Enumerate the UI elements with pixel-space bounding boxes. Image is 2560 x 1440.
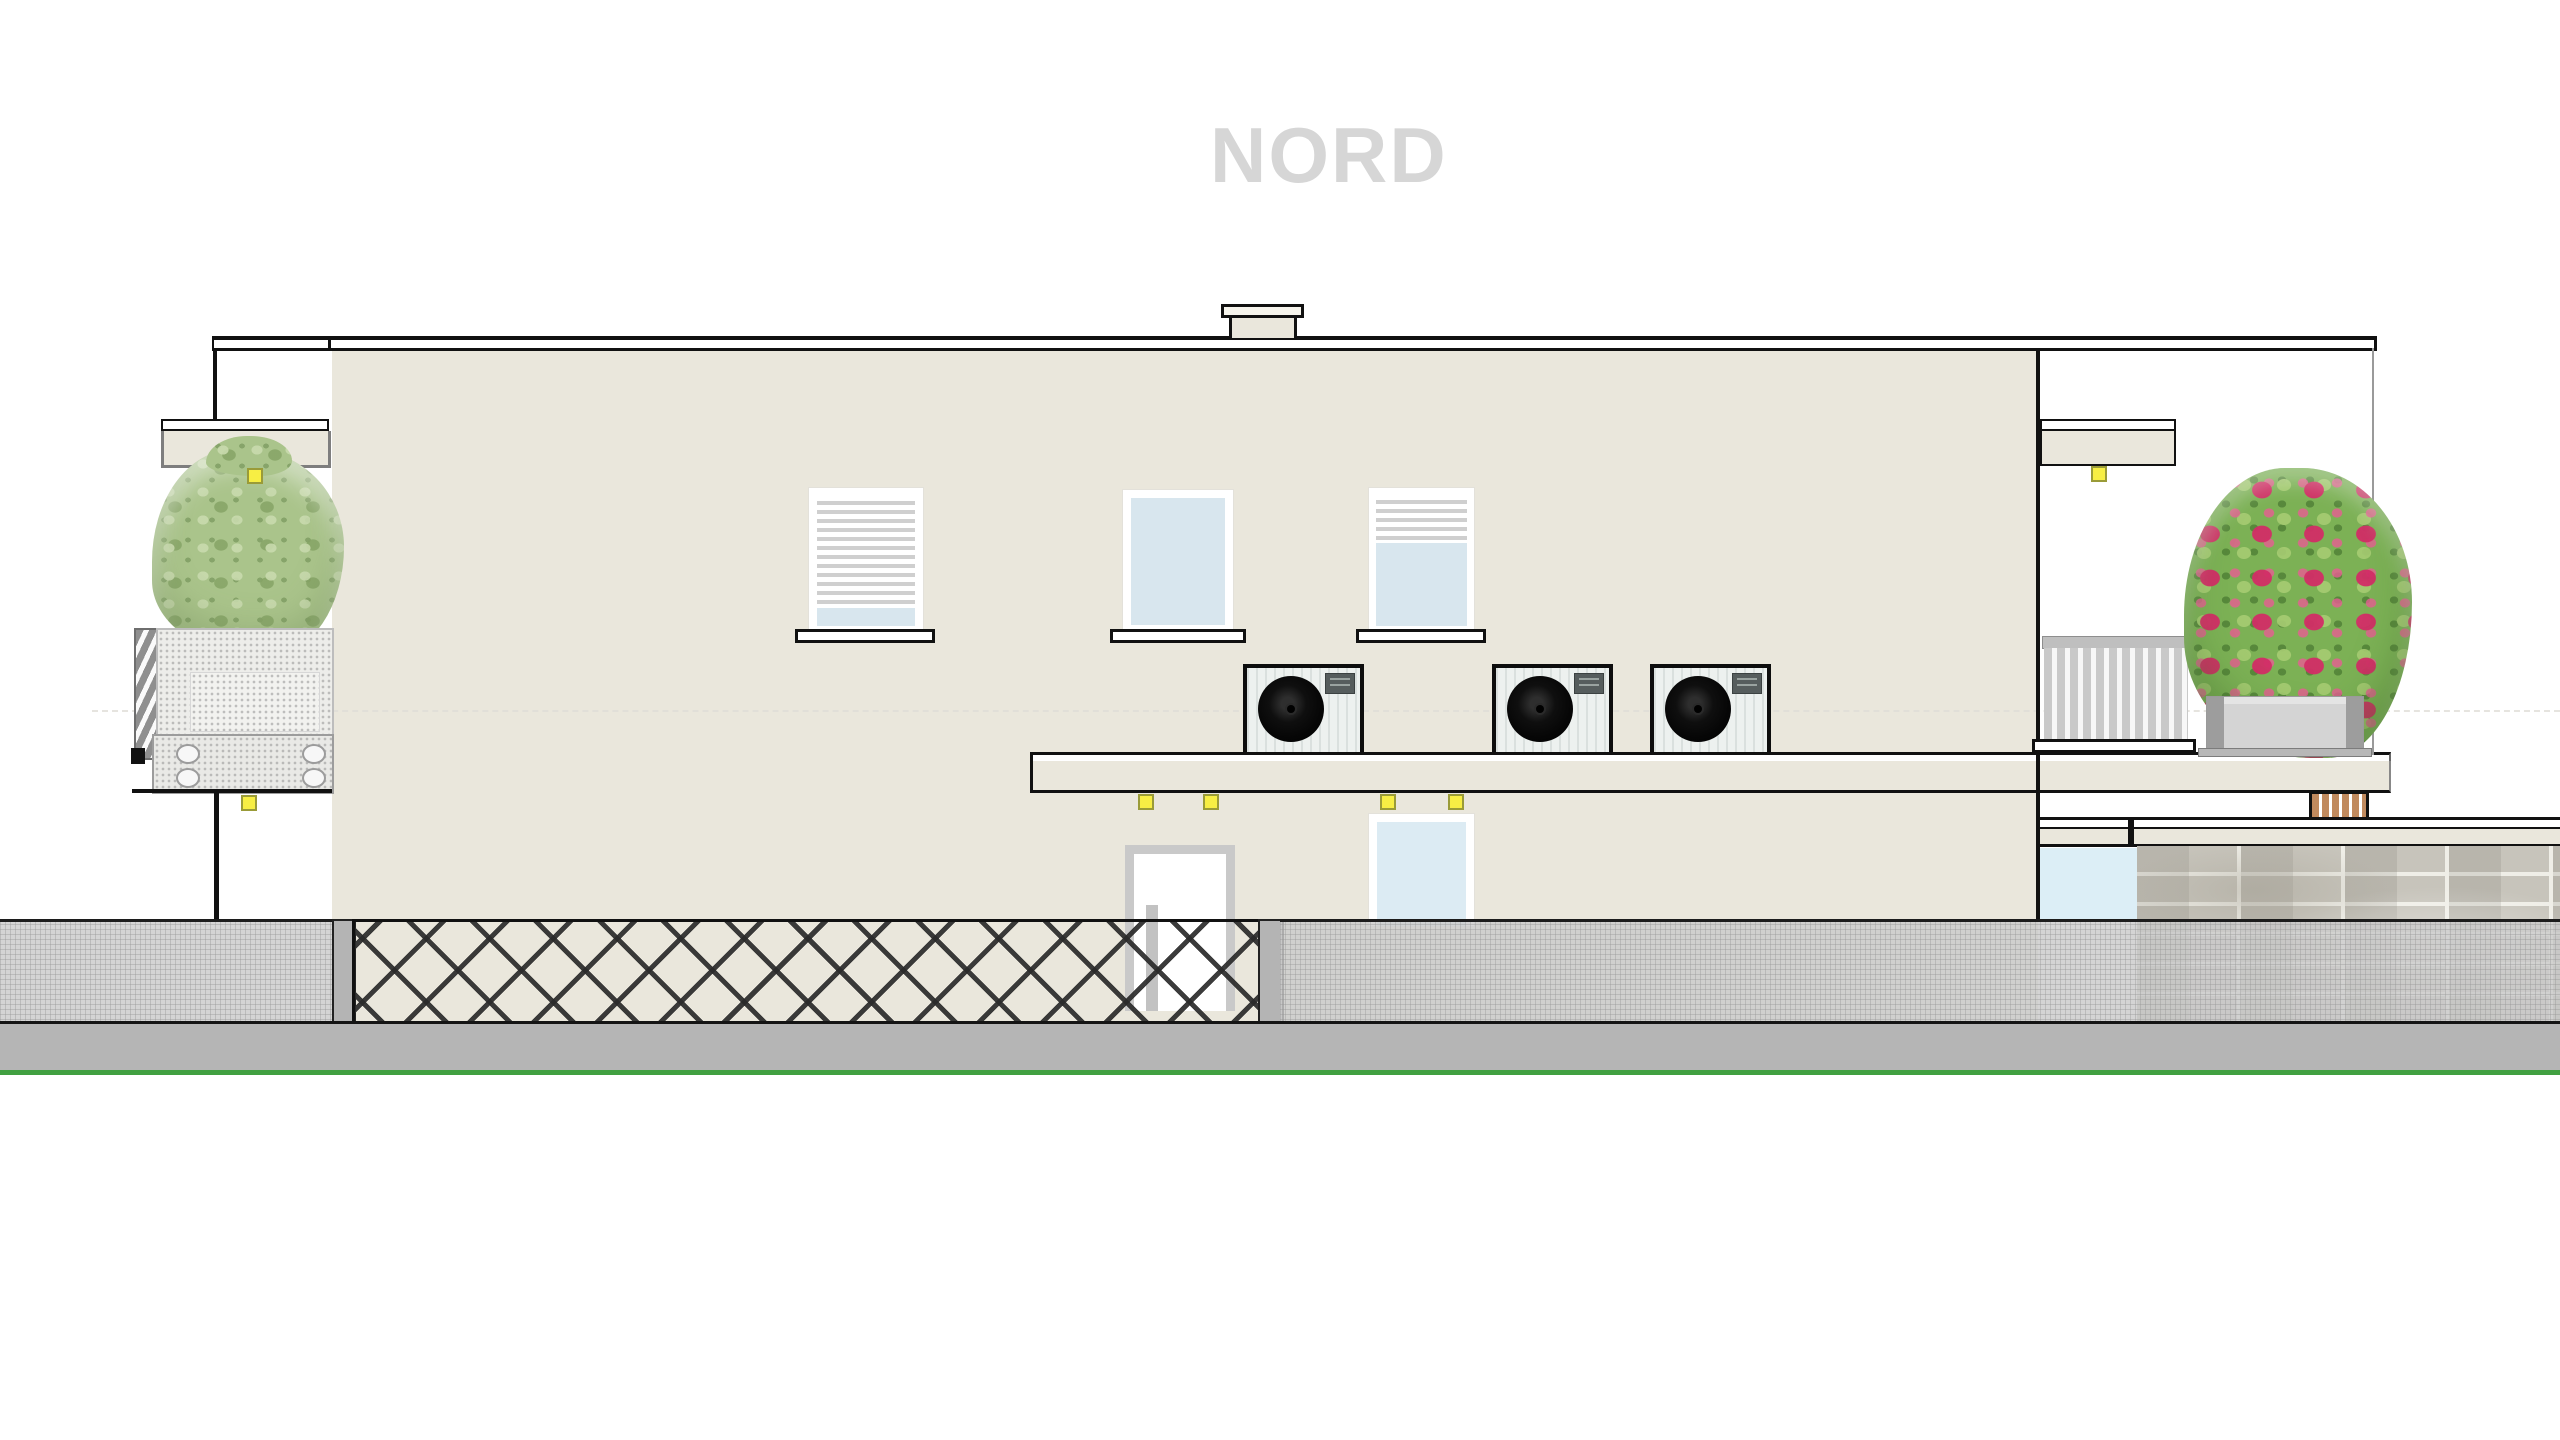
rivet-circle — [302, 744, 326, 764]
elevation-title: NORD — [1210, 110, 1470, 201]
lower-canopy-post — [2128, 817, 2134, 847]
heat-pump-unit-1 — [1243, 664, 1364, 759]
window-upper-middle — [1122, 489, 1234, 634]
heat-pump-unit-2 — [1492, 664, 1613, 759]
lower-canopy-slab — [2040, 829, 2560, 847]
terrace-planter-box — [2206, 696, 2364, 755]
terrace-railing-balusters — [2044, 648, 2188, 739]
rivet-circle — [176, 768, 200, 788]
grass-line — [0, 1070, 2560, 1075]
north-elevation-drawing: NORD — [0, 0, 2560, 1440]
lower-canopy-top-band — [2040, 817, 2560, 829]
label-line — [1330, 684, 1350, 686]
ceiling-light — [1138, 794, 1154, 810]
window-upper-left — [808, 487, 924, 635]
left-column-upper — [213, 349, 217, 421]
label-line — [1579, 684, 1599, 686]
window-roller-blind-half — [1376, 495, 1467, 543]
ceiling-light — [1380, 794, 1396, 810]
rivet-circle — [302, 768, 326, 788]
mesh-fence-left — [0, 919, 332, 1025]
roof-slab — [212, 336, 2377, 351]
planter-rim — [2224, 697, 2346, 704]
sidewalk-band — [0, 1021, 2560, 1073]
planter-side — [2346, 697, 2363, 754]
fan-icon — [1665, 676, 1731, 742]
brand-label — [1574, 673, 1604, 694]
fan-icon — [1258, 676, 1324, 742]
window-upper-right — [1368, 487, 1475, 635]
balcony-slab — [1030, 761, 2391, 793]
label-line — [1737, 678, 1757, 680]
chain-link-gate — [352, 919, 1264, 1028]
fan-icon — [1507, 676, 1573, 742]
left-balcony-panel-inset — [190, 672, 320, 732]
ceiling-light — [1203, 794, 1219, 810]
left-balcony-perforated-panel — [156, 628, 334, 738]
right-canopy-top-band — [2040, 419, 2176, 431]
left-balcony-bracket-foot — [131, 748, 145, 764]
label-line — [1330, 678, 1350, 680]
window-sill — [795, 629, 935, 643]
roof-parapet-cap — [1221, 304, 1304, 318]
terrace-railing-base — [2032, 739, 2196, 753]
right-canopy-slab — [2040, 431, 2176, 466]
planter-side — [2207, 697, 2224, 754]
ceiling-light — [2091, 466, 2107, 482]
mesh-fence-right — [1280, 919, 2560, 1025]
window-glass — [1131, 498, 1225, 625]
heat-pump-unit-3 — [1650, 664, 1771, 759]
window-sill — [1110, 629, 1246, 643]
window-glass — [1377, 822, 1466, 926]
window-sill — [1356, 629, 1486, 643]
window-glass — [1376, 543, 1467, 626]
brand-label — [1732, 673, 1762, 694]
label-line — [1579, 678, 1599, 680]
window-glass-strip — [817, 608, 915, 626]
left-column-lower — [214, 793, 219, 922]
window-ground-floor — [1368, 813, 1475, 927]
left-balcony-bottom-edge — [132, 789, 332, 793]
ceiling-light — [241, 795, 257, 811]
rivet-circle — [176, 744, 200, 764]
ceiling-light — [1448, 794, 1464, 810]
label-line — [1737, 684, 1757, 686]
roof-slab-step-joint — [328, 336, 331, 350]
left-balcony-parapet-box — [152, 734, 334, 794]
left-canopy-top-band — [161, 419, 329, 431]
window-roller-blind-closed — [817, 496, 915, 608]
ceiling-light — [247, 468, 263, 484]
planter-tray — [2198, 748, 2372, 757]
ground-floor-glazing-right — [2040, 848, 2137, 920]
brand-label — [1325, 673, 1355, 694]
